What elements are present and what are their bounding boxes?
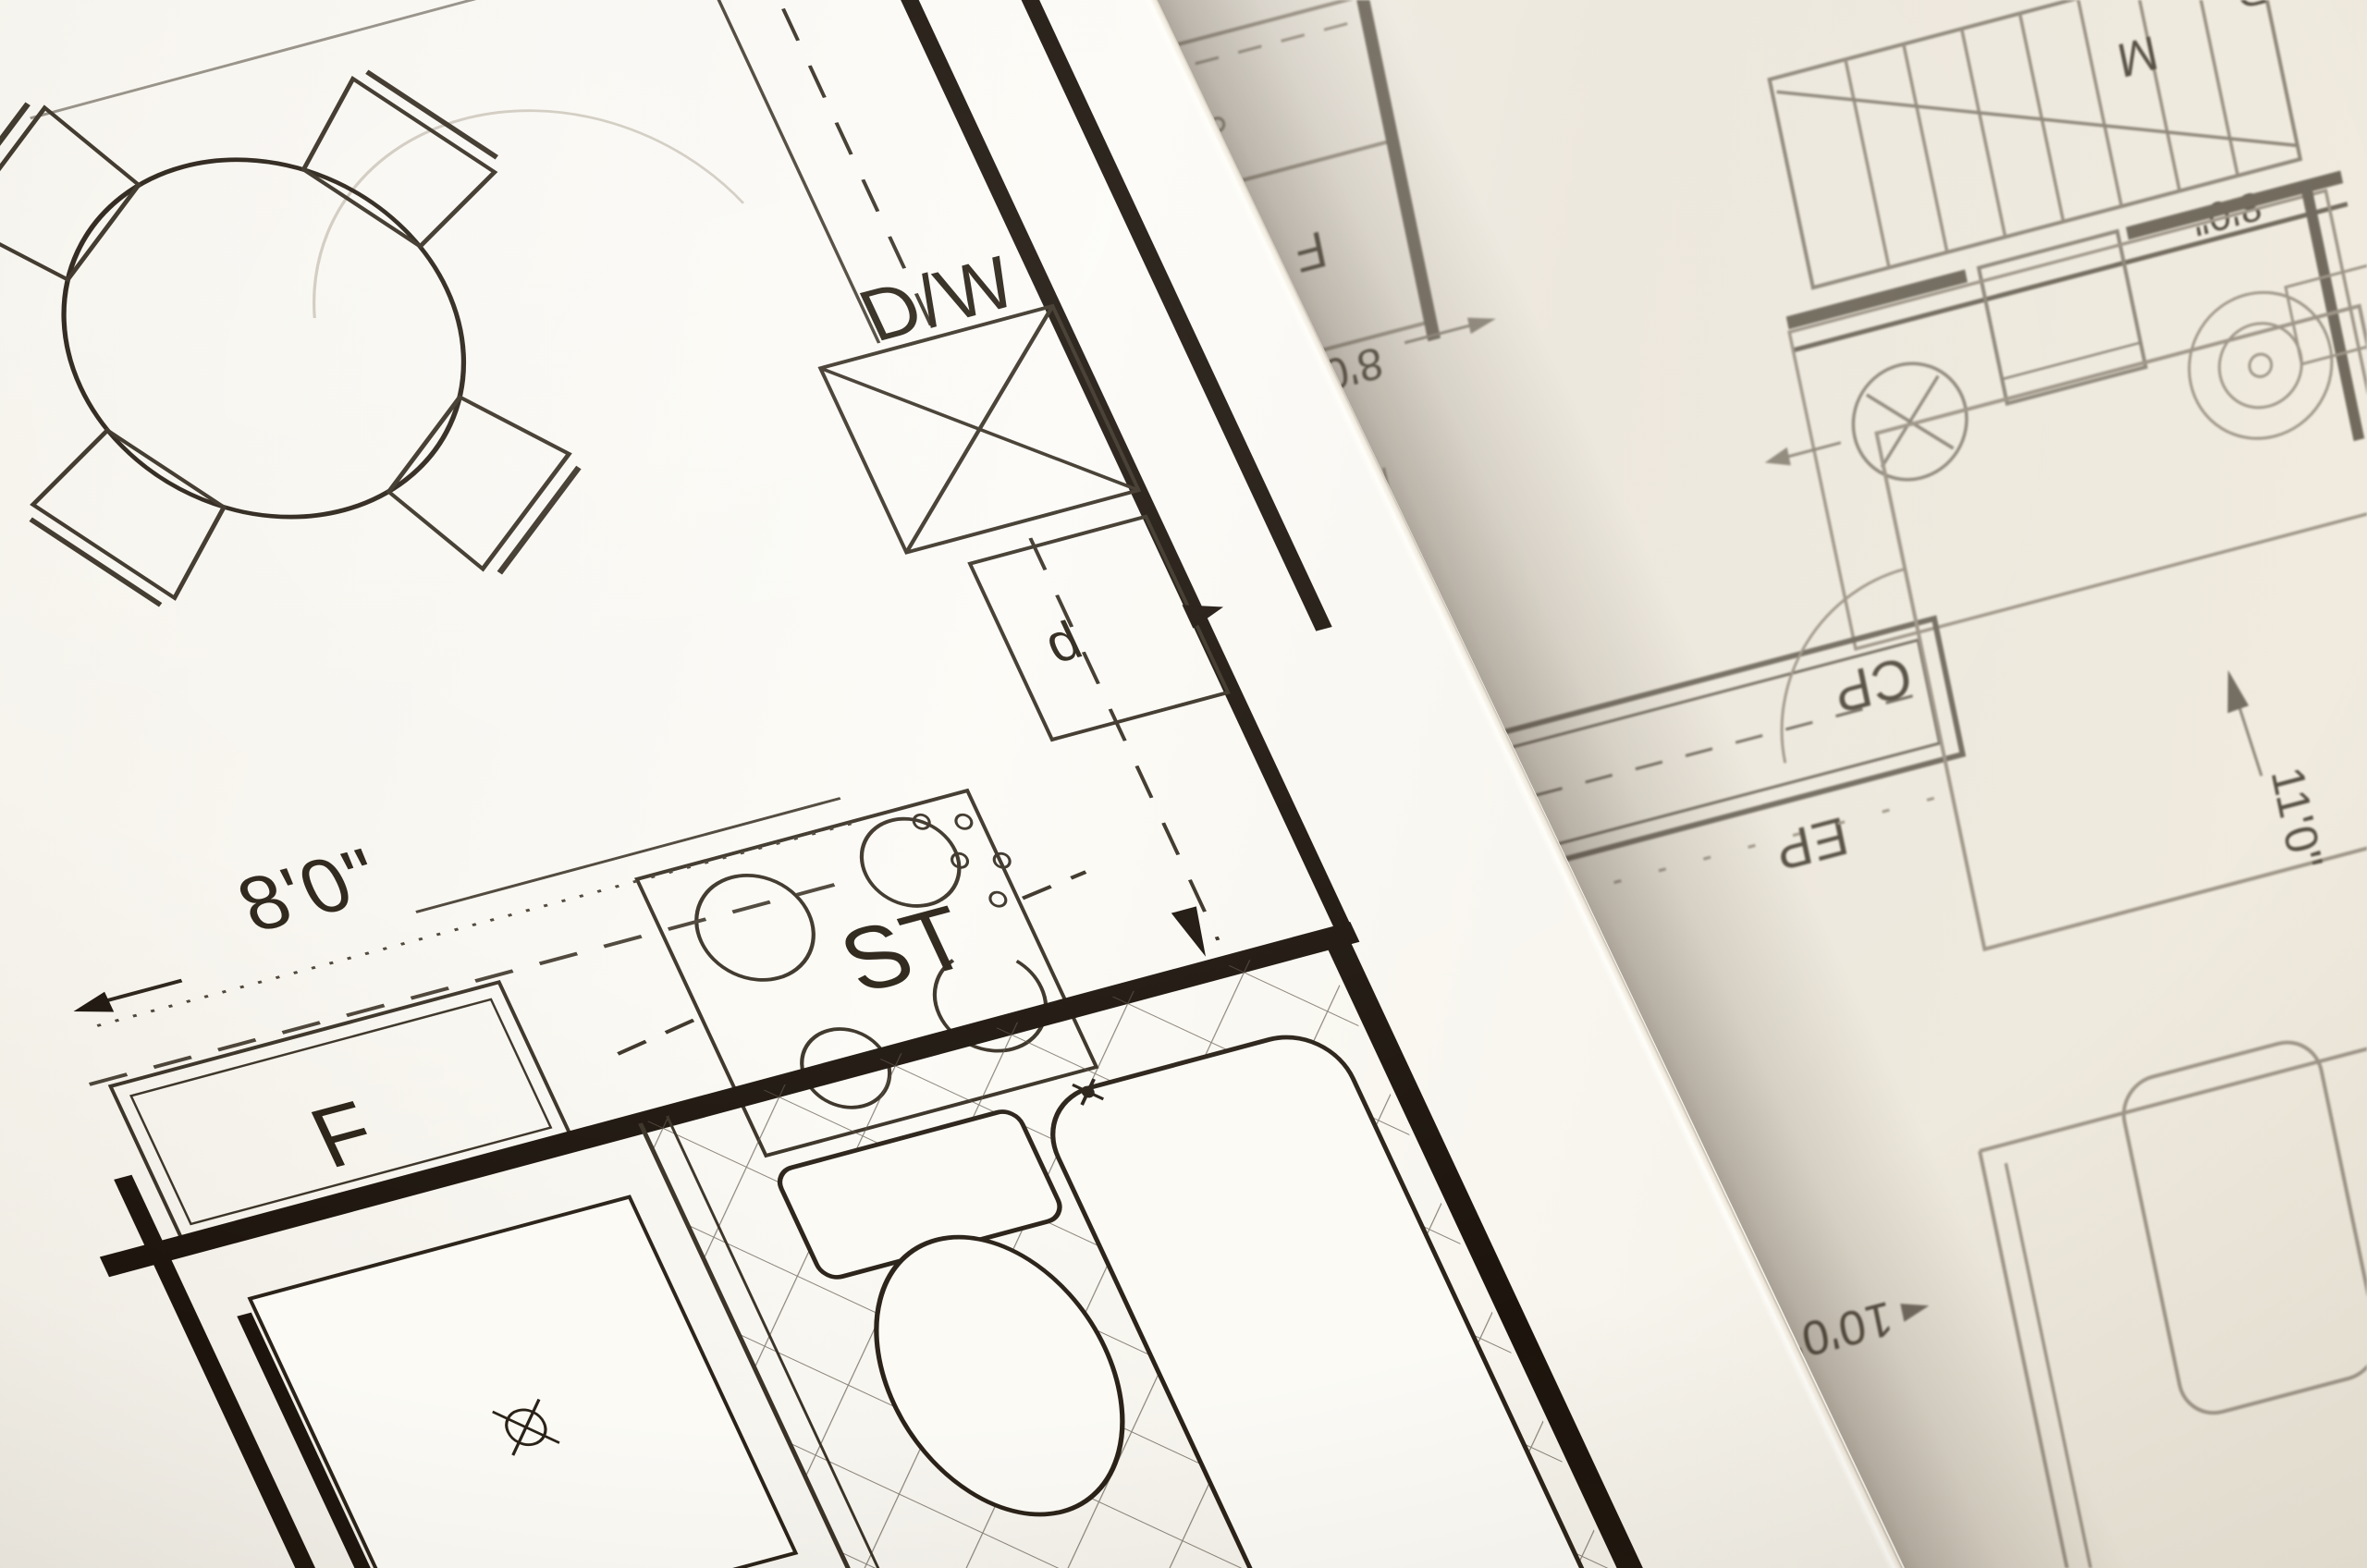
bed-outline	[2117, 1035, 2367, 1421]
door-arc-faint	[249, 62, 743, 318]
sink-box	[970, 517, 1228, 740]
closet-label-cp: CP	[1828, 644, 1917, 725]
door-leaf	[1979, 231, 2146, 403]
wall-arrow	[1171, 906, 1219, 960]
dimension-label-11ft: 11'0"	[2262, 762, 2333, 876]
dim-arrow	[2219, 667, 2249, 713]
dining-chair	[291, 67, 503, 254]
upper-cabinet-lines	[55, 798, 876, 1084]
stove-burner	[678, 863, 832, 992]
photo-canvas: M D 8'0"	[0, 0, 2367, 1568]
dim-arrow	[1763, 447, 1791, 472]
dining-chair	[381, 387, 583, 578]
fridge-label: F	[297, 1084, 392, 1187]
dining-table	[1, 117, 527, 559]
dishwasher-label: D/W	[847, 241, 1030, 357]
counter-edge	[570, 0, 878, 343]
dining-chairs	[0, 0, 675, 683]
dining-chair	[25, 423, 237, 609]
plan-line	[31, 0, 816, 118]
stove-label: ST	[825, 887, 987, 1012]
door-label-d: D	[2231, 0, 2272, 19]
staircase	[1770, 0, 2300, 288]
vent-fan-symbol	[1771, 350, 1978, 511]
dim-arrow	[68, 992, 114, 1022]
dimension-label-8ft: 8'0"	[225, 832, 397, 949]
dishwasher-box	[820, 306, 1138, 553]
sink-label: d	[1035, 609, 1093, 674]
stairs-label-m: M	[2112, 25, 2163, 88]
